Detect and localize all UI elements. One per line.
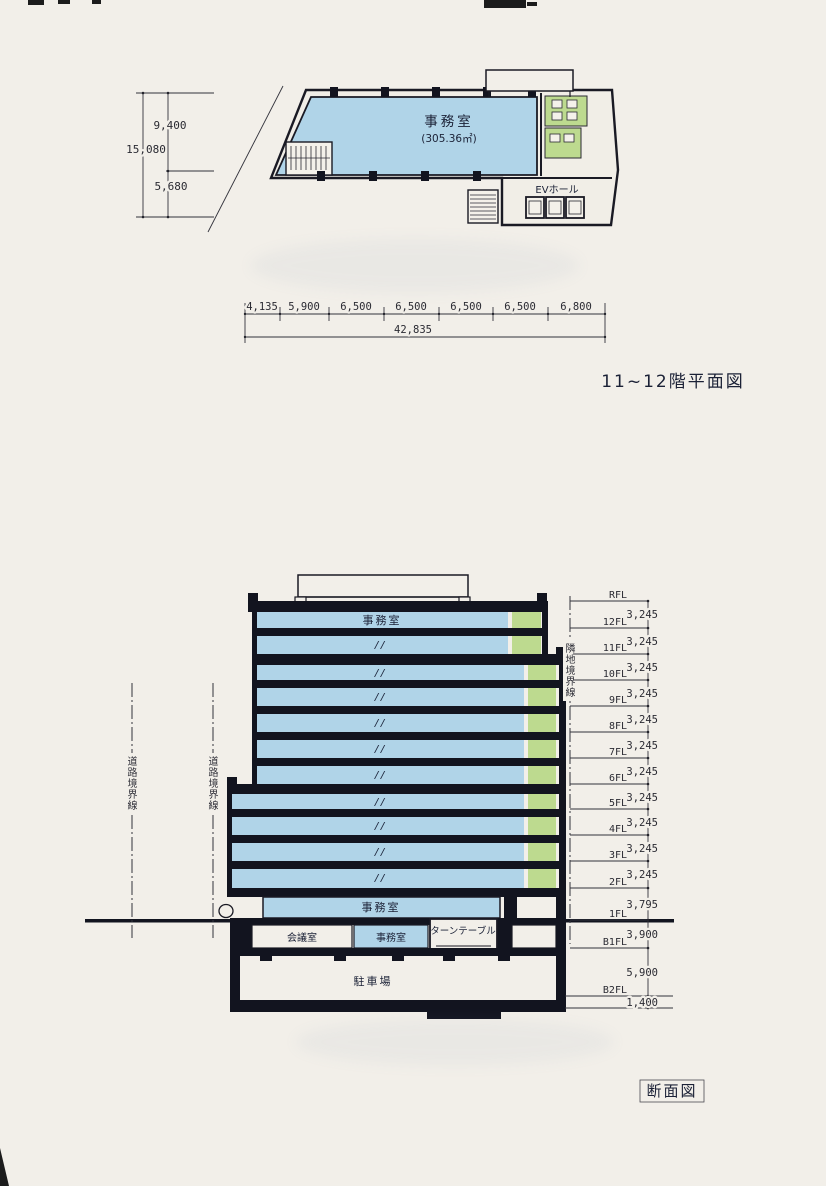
floor-plan: 事務室 (305.36㎡) EVホール 9,400 15,080 5,680 [126, 70, 745, 392]
level-label-6fl: 6FL [609, 773, 627, 784]
svg-text://: // [374, 668, 386, 679]
level-label-b1fl: B1FL [603, 937, 627, 948]
level-dim-4fl-3fl: 3,245 [626, 843, 658, 855]
plan-ev-hall-label: EVホール [535, 184, 578, 196]
section-floor-11 [252, 636, 548, 654]
section-floor-5 [227, 794, 566, 809]
paper-bleedthrough-smudge [295, 1018, 615, 1066]
level-dim-7fl-6fl: 3,245 [626, 766, 658, 778]
section-floor-8 [252, 714, 566, 732]
level-dim-5fl-4fl: 3,245 [626, 817, 658, 829]
drawing-sheet: 事務室 (305.36㎡) EVホール 9,400 15,080 5,680 [0, 0, 826, 1186]
road-boundary-label-2: 道路境界線 [206, 753, 216, 814]
section-office-b1-label: 事務室 [376, 931, 406, 944]
svg-text://: // [374, 873, 386, 884]
dim-left-upper: 9,400 [153, 119, 186, 132]
dim-bottom-seg-2: 5,900 [288, 301, 320, 313]
level-label-5fl: 5FL [609, 798, 627, 809]
dim-bottom-seg-3: 6,500 [340, 301, 372, 313]
level-dim-8fl-7fl: 3,245 [626, 740, 658, 752]
svg-text://: // [374, 821, 386, 832]
level-dim-b1fl-b2fl: 5,900 [626, 967, 658, 979]
svg-text://: // [374, 744, 386, 755]
plan-left-dimensions: 9,400 15,080 5,680 [126, 92, 214, 219]
section-office-1f-label: 事務室 [362, 900, 401, 914]
level-label-3fl: 3FL [609, 850, 627, 861]
level-label-8fl: 8FL [609, 721, 627, 732]
level-dim-rfl-12fl: 3,245 [626, 609, 658, 621]
level-label-1fl: 1FL [609, 909, 627, 920]
plan-restroom [545, 128, 581, 158]
dim-bottom-seg-7: 6,800 [560, 301, 592, 313]
section-turntable-label: ターンテーブル [430, 925, 496, 937]
level-label-b2fl: B2FL [603, 985, 627, 996]
svg-text://: // [374, 770, 386, 781]
section-title: 断面図 [646, 1082, 697, 1100]
section-level-dimensions: RFL 12FL 11FL 10FL 9FL 8FL 7FL 6FL 5FL 4… [565, 590, 673, 1009]
plan-stair-left [286, 142, 332, 175]
section-b1-slab [240, 948, 565, 961]
level-dim-1fl-b1fl: 3,900 [626, 929, 658, 941]
dim-bottom-total: 42,835 [394, 324, 432, 336]
svg-text://: // [374, 797, 386, 808]
level-label-10fl: 10FL [603, 669, 627, 680]
dim-bottom-seg-4: 6,500 [395, 301, 427, 313]
section-floor-2 [227, 869, 566, 888]
svg-text://: // [374, 718, 386, 729]
level-label-12fl: 12FL [603, 617, 627, 628]
section-meeting-room-label: 会議室 [287, 931, 317, 944]
svg-text://: // [374, 640, 386, 651]
level-label-7fl: 7FL [609, 747, 627, 758]
level-label-4fl: 4FL [609, 824, 627, 835]
section-floor-6 [252, 766, 566, 784]
dim-left-total: 15,080 [126, 143, 166, 156]
plan-restroom [545, 96, 587, 126]
level-label-9fl: 9FL [609, 695, 627, 706]
dim-bottom-seg-6: 6,500 [504, 301, 536, 313]
plan-office-area-label: (305.36㎡) [421, 133, 476, 145]
level-label-rfl: RFL [609, 590, 627, 601]
section-parking-label: 駐車場 [354, 974, 393, 988]
level-dim-b2fl-base: 1,400 [626, 997, 658, 1009]
section-office-top-label: 事務室 [363, 613, 402, 627]
section-floor-1 [263, 895, 566, 918]
adjacent-boundary-label: 隣地境界線 [563, 640, 573, 701]
dim-left-lower: 5,680 [154, 180, 187, 193]
plan-stair-right [468, 190, 498, 223]
section-penthouse [295, 575, 470, 604]
plan-bottom-dimensions: 4,135 5,900 6,500 6,500 6,500 6,500 6,80… [244, 301, 606, 343]
plan-elevators [526, 197, 584, 218]
section-floor-7 [252, 740, 566, 758]
section-ground [85, 918, 674, 925]
level-dim-9fl-8fl: 3,245 [626, 714, 658, 726]
site-boundary-line [208, 86, 283, 232]
scanned-architectural-sheet: { "plan": { "title": "11~12階平面図", "offic… [0, 0, 826, 1186]
dim-bottom-seg-5: 6,500 [450, 301, 482, 313]
road-boundary-label-1: 道路境界線 [125, 753, 135, 814]
section-floor-9 [252, 688, 566, 706]
level-label-2fl: 2FL [609, 877, 627, 888]
level-label-11fl: 11FL [603, 643, 627, 654]
shrub [219, 905, 233, 918]
level-dim-2fl-1fl: 3,795 [626, 899, 658, 911]
level-dim-11fl-10fl: 3,245 [626, 662, 658, 674]
level-dim-12fl-11fl: 3,245 [626, 636, 658, 648]
svg-text://: // [374, 692, 386, 703]
level-dim-6fl-5fl: 3,245 [626, 792, 658, 804]
section-floor-10 [252, 665, 566, 680]
section-floor-4 [227, 817, 566, 835]
svg-text://: // [374, 847, 386, 858]
plan-title: 11~12階平面図 [601, 372, 745, 392]
level-dim-10fl-9fl: 3,245 [626, 688, 658, 700]
paper-bleedthrough-smudge [250, 238, 580, 293]
section-floor-3 [227, 843, 566, 861]
level-dim-3fl-2fl: 3,245 [626, 869, 658, 881]
dim-bottom-seg-1: 4,135 [246, 301, 278, 313]
plan-office-label: 事務室 [424, 113, 474, 130]
